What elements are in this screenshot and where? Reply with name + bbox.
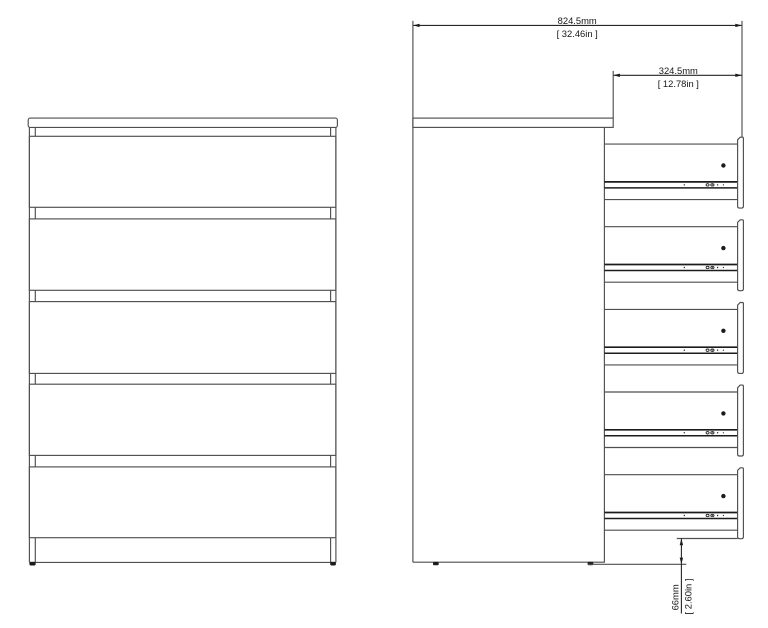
- svg-text:824.5mm: 824.5mm: [558, 15, 597, 26]
- svg-text:324.5mm: 324.5mm: [659, 65, 698, 76]
- svg-text:[ 32.46in ]: [ 32.46in ]: [557, 28, 598, 39]
- svg-text:[ 2.60in ]: [ 2.60in ]: [683, 579, 694, 615]
- svg-text:66mm: 66mm: [669, 584, 680, 610]
- svg-text:[ 12.78in ]: [ 12.78in ]: [658, 78, 699, 89]
